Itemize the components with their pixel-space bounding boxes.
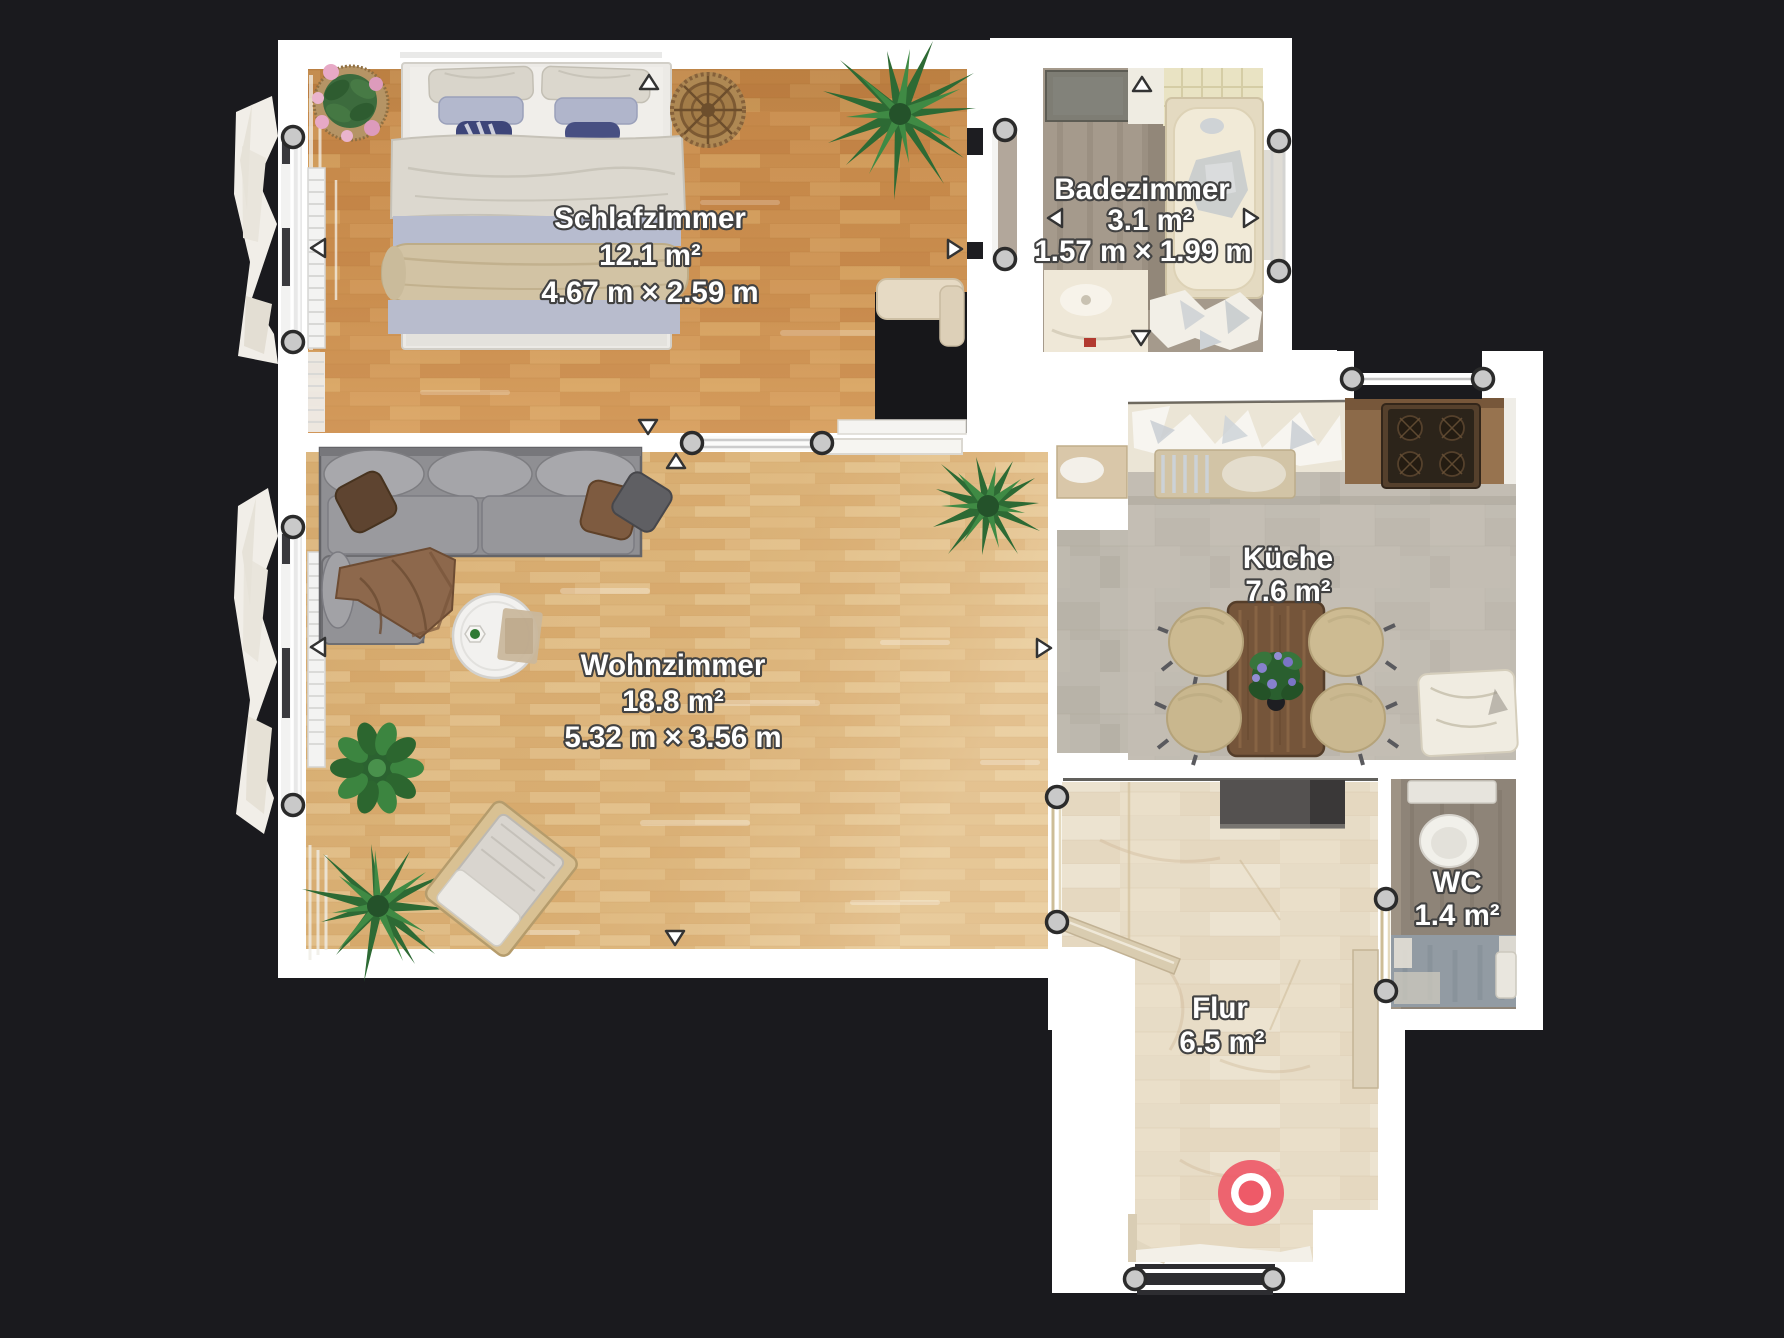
svg-text:Wohnzimmer: Wohnzimmer [581,649,766,682]
svg-text:7.6 m²: 7.6 m² [1245,575,1330,608]
svg-text:1.4 m²: 1.4 m² [1414,899,1499,932]
svg-text:6.5 m²: 6.5 m² [1179,1026,1264,1059]
svg-text:18.8 m²: 18.8 m² [622,685,724,718]
svg-text:5.32 m × 3.56 m: 5.32 m × 3.56 m [564,721,781,754]
svg-text:12.1 m²: 12.1 m² [599,239,701,272]
svg-text:3.1 m²: 3.1 m² [1107,204,1192,237]
svg-text:Flur: Flur [1192,992,1248,1025]
svg-text:Schlafzimmer: Schlafzimmer [554,202,746,235]
svg-text:1.57 m × 1.99 m: 1.57 m × 1.99 m [1034,235,1251,268]
svg-text:Badezimmer: Badezimmer [1054,173,1230,206]
svg-text:Küche: Küche [1243,542,1333,575]
svg-text:4.67 m × 2.59 m: 4.67 m × 2.59 m [541,276,758,309]
svg-text:WC: WC [1432,866,1481,899]
